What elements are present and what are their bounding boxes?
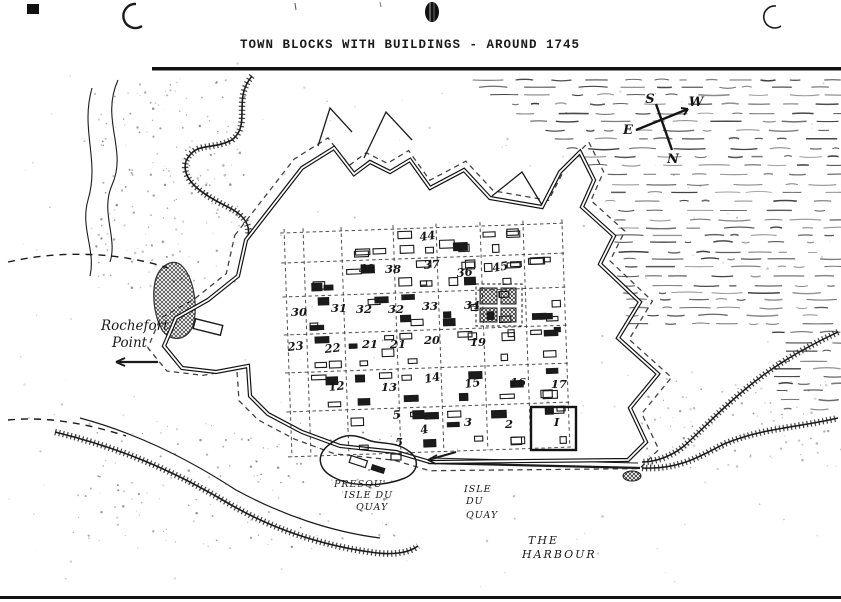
rochefort-line2: Point	[111, 335, 148, 351]
bottom-rule	[0, 596, 841, 599]
isledu-line3: QUAY	[466, 510, 499, 521]
approach-dashes-upper	[8, 254, 168, 268]
label-isle-du-quay: ISLE DU QUAY	[463, 484, 499, 521]
compass-s: S	[645, 92, 654, 107]
presquile-line1: PRESQU'	[333, 479, 386, 490]
block-number-36: 36	[456, 264, 473, 280]
block-number-13: 13	[381, 380, 397, 394]
page-title: TOWN BLOCKS WITH BUILDINGS - AROUND 1745	[240, 38, 580, 52]
block-number-14: 14	[423, 369, 441, 386]
block-number-31: 31	[331, 301, 347, 315]
isledu-line2: DU	[465, 496, 484, 507]
block-number-12: 12	[328, 378, 345, 394]
crescent-mark-left	[123, 4, 142, 28]
block-number-15: 15	[463, 375, 481, 391]
corner-mark	[27, 4, 39, 14]
scanned-page: TOWN BLOCKS WITH BUILDINGS - AROUND 1745	[0, 0, 841, 602]
map-canvas: TOWN BLOCKS WITH BUILDINGS - AROUND 1745	[0, 0, 841, 602]
block-number-32: 32	[356, 302, 372, 316]
block-number-5: 5	[392, 407, 401, 422]
block-number-20: 20	[423, 333, 440, 347]
block-number-19: 19	[470, 335, 486, 349]
block-number-16: 16	[510, 375, 526, 389]
block-number-5: 5	[395, 435, 403, 449]
block-number-34: 34	[464, 298, 480, 312]
block-number-33: 33	[422, 299, 438, 313]
block-number-3: 3	[464, 415, 472, 429]
block-number-44: 44	[418, 228, 436, 244]
block-number-2: 2	[504, 417, 513, 431]
presquile-line2: ISLE DU	[343, 490, 393, 501]
block-number-45: 45	[491, 258, 509, 275]
block-number-39: 39	[359, 261, 375, 275]
block-number-38: 38	[385, 262, 401, 276]
rochefort-line1: Rochefort	[100, 318, 169, 334]
block-number-23: 23	[286, 338, 304, 354]
approach-dashes-lower	[8, 419, 126, 436]
label-the-harbour: THE HARBOUR	[521, 534, 597, 561]
isledu-line1: ISLE	[463, 484, 492, 495]
label-presquile-quay: PRESQU' ISLE DU QUAY	[333, 479, 393, 513]
compass-n: N	[666, 152, 680, 167]
harbour-line2: HARBOUR	[521, 548, 597, 561]
block-number-30: 30	[291, 305, 307, 319]
glacis-outline	[148, 138, 672, 471]
top-rule	[152, 67, 841, 71]
block-number-32: 32	[388, 302, 404, 316]
block-number-22: 22	[323, 340, 341, 356]
harbour-line1: THE	[528, 534, 559, 547]
presquile-line3: QUAY	[356, 502, 389, 513]
binder-hole	[425, 2, 439, 22]
compass-w: W	[689, 95, 705, 110]
block-number-37: 37	[423, 257, 440, 272]
compass-e: E	[622, 123, 634, 138]
compass-rose: S W E N	[622, 92, 705, 167]
label-rochefort-point: Rochefort Point	[100, 318, 169, 366]
block-number-17: 17	[551, 377, 567, 391]
crescent-mark-right	[764, 6, 781, 28]
block-number-21: 21	[389, 337, 406, 351]
block-number-21: 21	[361, 337, 378, 351]
block-number-I: I	[553, 415, 560, 429]
block-number-4: 4	[419, 422, 429, 437]
scan-artifacts	[27, 2, 781, 28]
